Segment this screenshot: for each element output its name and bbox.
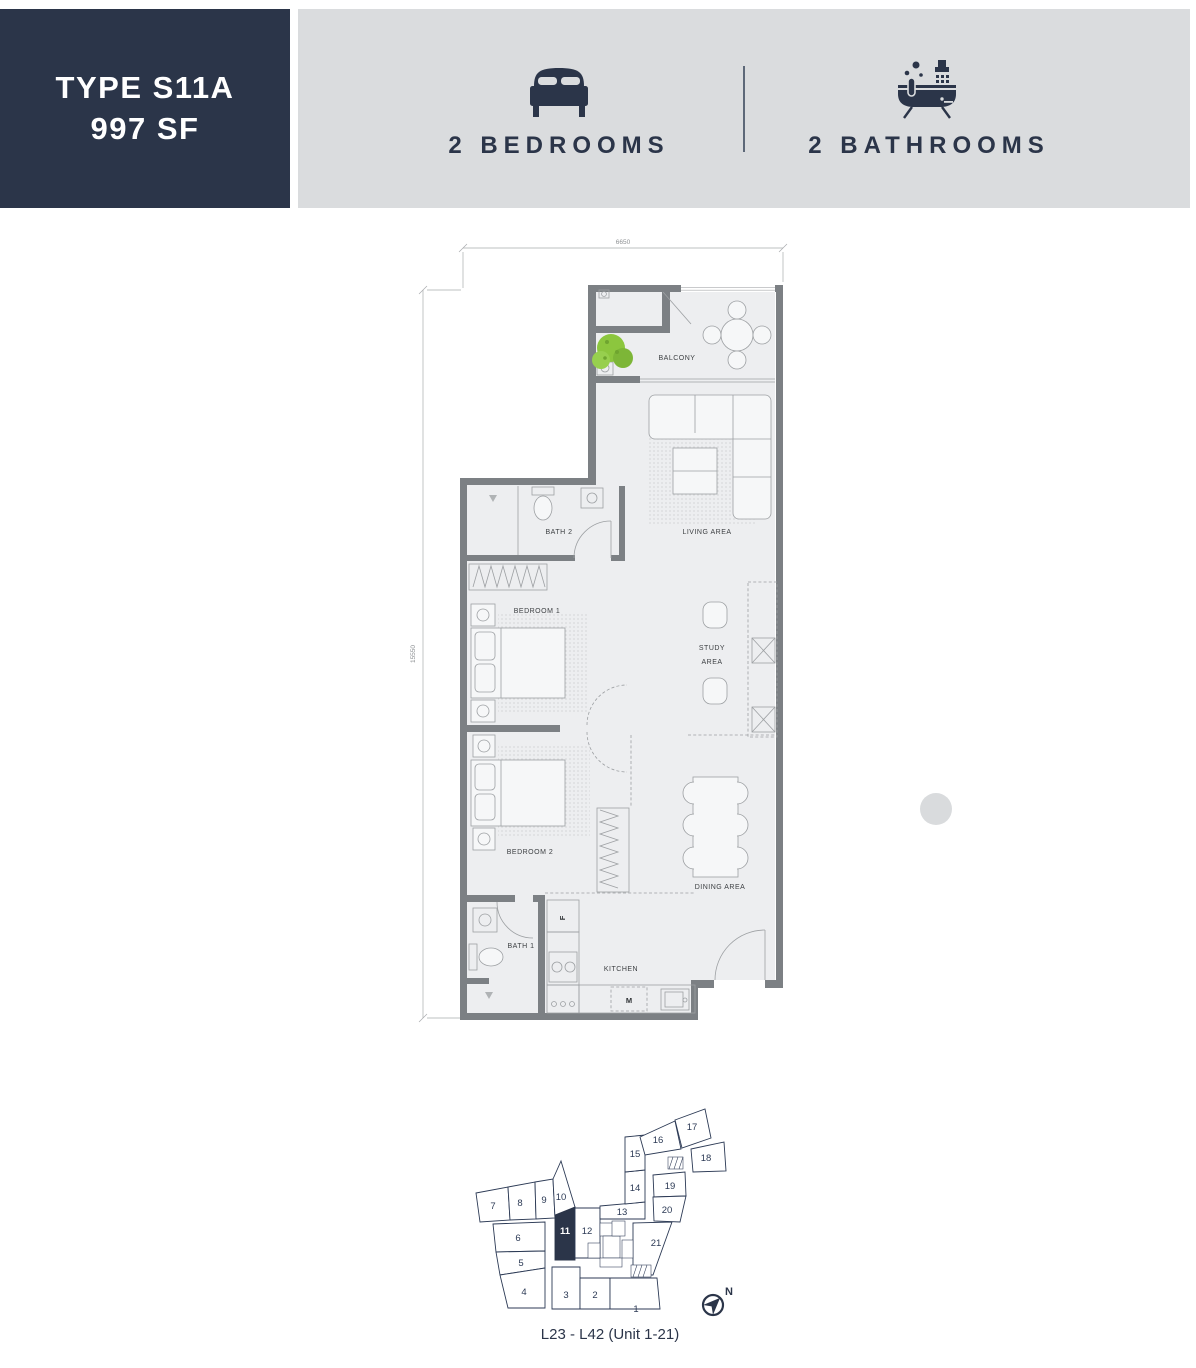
unit-size-label: 997 SF [91,109,200,150]
feature-bedrooms: 2 BEDROOMS [409,58,709,160]
bathtub-icon [894,58,964,120]
bedrooms-label: 2 BEDROOMS [448,132,669,160]
fridge-label: F [558,915,567,920]
keyplan-units [476,1109,726,1309]
svg-text:1: 1 [633,1304,638,1315]
dimension-width: 6650 [616,239,631,246]
label-bedroom1: BEDROOM 1 [514,608,561,615]
feature-bathrooms: 2 BATHROOMS [779,58,1079,160]
feature-divider [743,66,745,152]
svg-text:8: 8 [517,1198,522,1209]
svg-text:2: 2 [592,1290,597,1301]
svg-text:10: 10 [556,1192,567,1203]
svg-text:6: 6 [515,1233,520,1244]
floorplan-drawing: 6650 15550 [385,230,805,1065]
svg-text:18: 18 [701,1153,712,1164]
decorative-dot [920,793,952,825]
svg-text:4: 4 [521,1287,526,1298]
coffee-table [673,448,717,494]
washer-label: M [626,996,632,1005]
svg-text:9: 9 [541,1195,546,1206]
svg-text:21: 21 [651,1238,662,1249]
keyplan-caption: L23 - L42 (Unit 1-21) [460,1326,760,1343]
svg-text:16: 16 [653,1135,664,1146]
svg-text:19: 19 [665,1181,676,1192]
svg-text:7: 7 [490,1201,495,1212]
keyplan-unit-11-number: 11 [560,1226,571,1237]
svg-text:20: 20 [662,1205,673,1216]
svg-text:13: 13 [617,1207,628,1218]
unit-type-label: TYPE S11A [56,68,235,109]
label-bath2: BATH 2 [546,529,573,536]
label-kitchen: KITCHEN [604,966,638,973]
svg-text:17: 17 [687,1122,698,1133]
bathrooms-label: 2 BATHROOMS [808,132,1050,160]
label-bath1: BATH 1 [508,943,535,950]
keyplan-drawing: 1 2 3 4 5 6 7 8 9 10 11 12 13 14 15 16 1… [460,1095,760,1340]
north-label: N [725,1286,733,1298]
label-study-2: AREA [701,659,722,666]
label-balcony: BALCONY [659,355,696,362]
label-bedroom2: BEDROOM 2 [507,849,554,856]
dining-furniture [683,777,748,877]
svg-text:14: 14 [630,1183,641,1194]
dimension-height: 15550 [410,645,417,663]
features-band: 2 BEDROOMS 2 BATHROOMS [298,9,1190,208]
bed-icon [526,58,592,120]
label-dining: DINING AREA [695,884,746,891]
svg-text:3: 3 [563,1290,568,1301]
north-arrow: N [703,1286,733,1315]
label-living: LIVING AREA [682,529,731,536]
unit-type-card: TYPE S11A 997 SF [0,9,290,208]
svg-text:15: 15 [630,1149,641,1160]
balcony-window [681,285,775,292]
label-study-1: STUDY [699,645,725,652]
svg-text:12: 12 [582,1226,593,1237]
svg-text:5: 5 [518,1258,523,1269]
